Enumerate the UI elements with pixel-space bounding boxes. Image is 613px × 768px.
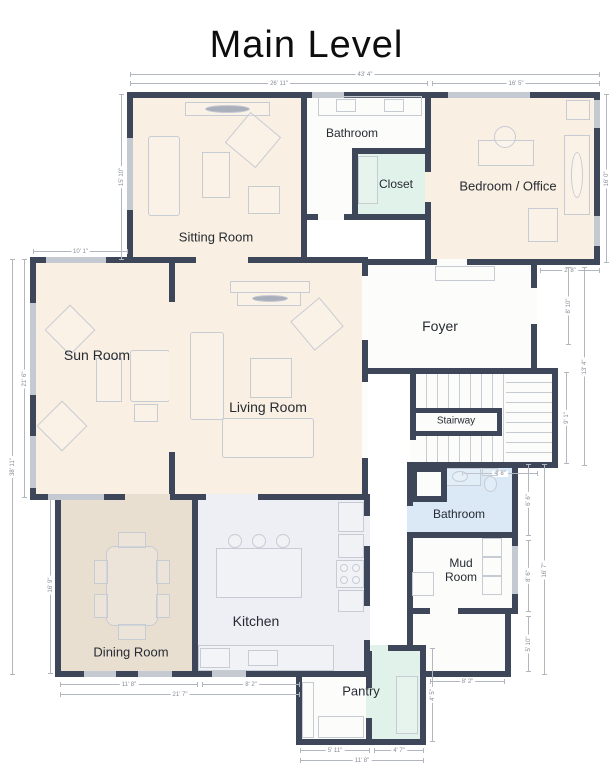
dim-label: 26' 11": [268, 81, 290, 87]
door-opening: [430, 608, 458, 614]
window: [46, 257, 106, 263]
window: [30, 303, 36, 395]
dim-label: 6' 6": [526, 492, 532, 508]
label-pantry: Pantry: [342, 684, 380, 699]
dim-label: 2' 8": [562, 268, 578, 274]
dim-sun-top: 10' 1": [33, 251, 128, 252]
sink-basin: [384, 99, 404, 112]
door-opening: [364, 606, 370, 640]
dim-label: 8' 2": [460, 679, 476, 685]
dim-left-sun: 21' 6": [24, 259, 25, 498]
window: [594, 100, 600, 128]
dim-right-lower-overall: 16' 7": [544, 464, 545, 675]
locker: [482, 576, 502, 595]
dim-right-foyer: 8' 10": [568, 267, 569, 345]
armchair: [248, 186, 280, 214]
door-opening: [169, 302, 175, 452]
dim-top-left: 26' 11": [130, 83, 428, 84]
label-closet: Closet: [379, 177, 413, 191]
dim-label: 21' 6": [22, 369, 28, 388]
dim-label: 11' 8": [120, 682, 139, 688]
door-opening: [407, 506, 413, 532]
pantry-shelf: [302, 682, 314, 738]
label-kitchen: Kitchen: [233, 613, 280, 629]
coffee-table: [202, 152, 230, 198]
dim-bottom-pantry-overall: 11' 8": [300, 760, 424, 761]
window: [312, 92, 344, 98]
window: [48, 494, 104, 500]
dim-label: 5' 10": [526, 635, 532, 654]
dining-chair: [156, 594, 170, 618]
door-opening: [206, 494, 258, 500]
door-opening: [362, 382, 368, 458]
door-opening: [196, 257, 248, 263]
window: [448, 92, 530, 98]
dim-right-mud: 8' 6": [528, 540, 529, 612]
window: [138, 671, 172, 677]
sink-basin: [452, 471, 468, 482]
window: [594, 216, 600, 246]
dim-label: 8' 6": [526, 568, 532, 584]
burner: [352, 576, 360, 584]
dim-bottom-dining: 11' 8": [60, 684, 198, 685]
pantry-shelf: [396, 676, 418, 734]
burner: [340, 564, 348, 572]
toilet-tank: [482, 468, 498, 476]
door-opening: [425, 172, 431, 202]
dim-top-overall: 43' 4": [130, 74, 600, 75]
dim-label: 8' 10": [566, 297, 572, 316]
dim-bottom-kitchen: 8' 2": [202, 684, 300, 685]
dim-bottom-left-overall: 21' 7": [60, 694, 300, 695]
stool: [252, 534, 266, 548]
label-foyer: Foyer: [422, 318, 458, 334]
bedroom-chair: [528, 208, 558, 242]
dim-label: 4' 5": [430, 687, 436, 703]
kitchen-island: [216, 548, 302, 598]
dim-label: 16' 7": [542, 560, 548, 579]
label-mud-room: Mud Room: [439, 556, 483, 584]
toilet-bowl: [484, 476, 497, 492]
dim-label: 4' 7": [391, 748, 407, 754]
burner: [352, 564, 360, 572]
dim-right-notch: 2' 8": [540, 270, 600, 271]
label-living-room: Living Room: [229, 399, 307, 415]
door-opening: [125, 494, 170, 500]
kitchen-cabinet: [338, 534, 364, 558]
dim-bottom-utility: 8' 2": [430, 681, 505, 682]
dim-label: 43' 4": [356, 72, 375, 78]
sectional-left: [190, 332, 224, 420]
dim-right-utility: 5' 10": [528, 616, 529, 672]
bath-nook: [411, 466, 447, 502]
dim-label: 9' 1": [564, 410, 570, 426]
label-bathroom-bottom: Bathroom: [433, 507, 485, 521]
dim-label: 16' 9": [48, 576, 54, 595]
dim-top-right: 16' 5": [432, 83, 600, 84]
kitchen-sink: [248, 650, 278, 666]
dishwasher: [200, 648, 230, 668]
label-dining-room: Dining Room: [93, 645, 168, 660]
door-opening: [437, 259, 467, 265]
sink-basin: [336, 99, 356, 112]
dim-bottom-pantry-right: 4' 7": [374, 750, 424, 751]
label-bedroom-office: Bedroom / Office: [459, 179, 556, 194]
dim-right-stairs: 9' 1": [566, 372, 567, 464]
locker: [482, 538, 502, 557]
loveseat: [130, 350, 170, 402]
dim-label: 11' 8": [353, 758, 372, 764]
ottoman: [134, 404, 158, 422]
dining-chair: [94, 594, 108, 618]
dim-label: 5' 11": [326, 748, 345, 754]
closet-rod: [358, 156, 378, 204]
vanity: [318, 96, 422, 116]
dim-label: 10' 1": [71, 249, 90, 255]
sun-coffee-table: [96, 358, 122, 402]
pantry-shelf: [318, 716, 364, 738]
dining-table: [106, 546, 158, 626]
burner: [340, 576, 348, 584]
door-opening: [370, 645, 388, 651]
stair-treads-horizontal: [506, 374, 552, 462]
dim-left-overall: 38' 11": [12, 259, 13, 675]
dim-label: 15' 10": [119, 166, 125, 188]
dim-label: 16' 0": [604, 169, 610, 188]
dim-label: 13' 4": [582, 357, 588, 376]
dresser-mirror: [571, 152, 583, 198]
dim-label: 38' 11": [10, 456, 16, 478]
dim-left-dining: 16' 9": [50, 496, 51, 674]
window: [84, 671, 116, 677]
dim-right-mid-overall: 13' 4": [584, 267, 585, 466]
refrigerator: [338, 502, 364, 532]
dim-right-pantry: 4' 5": [432, 648, 433, 742]
floor-plan: Main Level: [0, 0, 613, 768]
label-sun-room: Sun Room: [64, 347, 130, 363]
sectional-bottom: [222, 418, 314, 458]
dim-right-bedroom: 16' 0": [606, 94, 607, 263]
desk-chair: [494, 126, 516, 148]
dim-label: 16' 5": [507, 81, 526, 87]
door-opening: [531, 288, 537, 324]
stool: [276, 534, 290, 548]
door-opening: [318, 214, 344, 220]
window: [512, 546, 518, 594]
dining-chair: [156, 560, 170, 584]
dining-chair: [94, 560, 108, 584]
window: [212, 671, 246, 677]
dining-chair: [118, 532, 146, 548]
dining-chair: [118, 624, 146, 640]
soundbar: [205, 105, 250, 113]
locker: [482, 557, 502, 576]
label-bathroom-top: Bathroom: [326, 126, 378, 140]
bench: [412, 572, 434, 596]
label-sitting-room: Sitting Room: [179, 230, 253, 245]
door-opening: [410, 440, 416, 462]
door-opening: [362, 276, 368, 340]
foyer-rug: [435, 266, 495, 281]
dim-right-bath: 6' 6": [528, 464, 529, 536]
fireplace-insert: [252, 295, 288, 302]
dim-label: 8' 2": [243, 682, 259, 688]
dim-label: 21' 7": [171, 692, 190, 698]
label-stairway: Stairway: [437, 416, 475, 427]
window: [30, 436, 36, 488]
dim-left-sitting: 15' 10": [121, 94, 122, 260]
sofa: [148, 136, 180, 216]
door-opening: [364, 516, 370, 546]
stool: [228, 534, 242, 548]
page-title: Main Level: [0, 24, 613, 67]
kitchen-cabinet: [338, 590, 364, 612]
window: [127, 138, 133, 210]
living-coffee-table: [250, 358, 292, 398]
cabinet: [566, 100, 590, 120]
dim-bottom-pantry-left: 5' 11": [300, 750, 370, 751]
